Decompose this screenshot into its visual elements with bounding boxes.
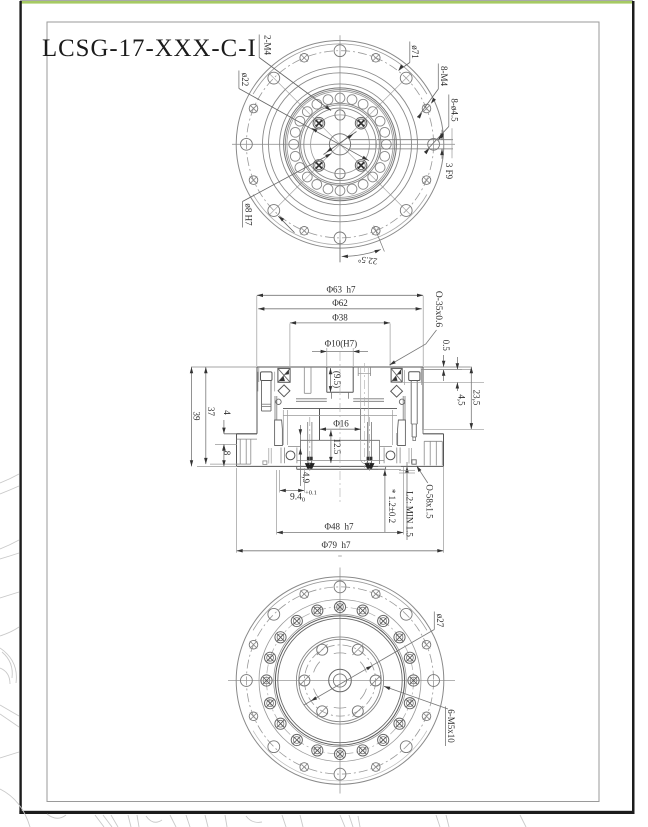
svg-text:4,9: 4,9 [301,472,311,484]
svg-text:O-35x0.6: O-35x0.6 [433,291,443,327]
svg-text:Φ10(H7): Φ10(H7) [325,338,358,348]
svg-text:0.5: 0.5 [441,340,451,352]
svg-text:O-58x1.5: O-58x1.5 [425,484,435,519]
svg-text:ø22: ø22 [240,73,250,87]
svg-text:Φ62: Φ62 [332,298,348,308]
svg-text:Φ48 h7: Φ48 h7 [324,522,354,532]
svg-text:2-M4: 2-M4 [262,35,272,55]
svg-text:ø8 H7: ø8 H7 [243,203,253,226]
svg-text:* 1.2±0.2: * 1.2±0.2 [387,489,397,523]
svg-text:4,5: 4,5 [457,394,467,406]
svg-text:6-M5x10: 6-M5x10 [446,709,456,743]
svg-text:ø27: ø27 [435,614,445,628]
svg-text:12.5: 12.5 [332,439,342,455]
svg-text:(9.5): (9.5) [332,371,342,388]
svg-text:ø71: ø71 [410,45,420,59]
svg-text:23,5: 23,5 [471,390,481,406]
svg-text:LCSG-17-XXX-C-I: LCSG-17-XXX-C-I [42,35,257,62]
svg-text:L2: MIN 1.5: L2: MIN 1.5 [404,491,414,537]
svg-text:3 F9: 3 F9 [444,163,454,180]
svg-text:39: 39 [192,412,202,422]
svg-text:Φ16: Φ16 [333,419,349,429]
svg-text:8-M4: 8-M4 [439,66,449,86]
svg-text:Φ79 h7: Φ79 h7 [321,540,351,550]
svg-text:9.40+0.1: 9.40+0.1 [290,490,317,504]
svg-text:37: 37 [206,407,216,417]
svg-text:4: 4 [222,410,232,415]
svg-text:Φ38: Φ38 [332,312,348,322]
svg-text:22.5°: 22.5° [357,254,378,266]
svg-text:8: 8 [222,451,232,456]
svg-text:8-ø4.5: 8-ø4.5 [450,98,460,122]
svg-text:Φ63 h7: Φ63 h7 [326,285,356,295]
